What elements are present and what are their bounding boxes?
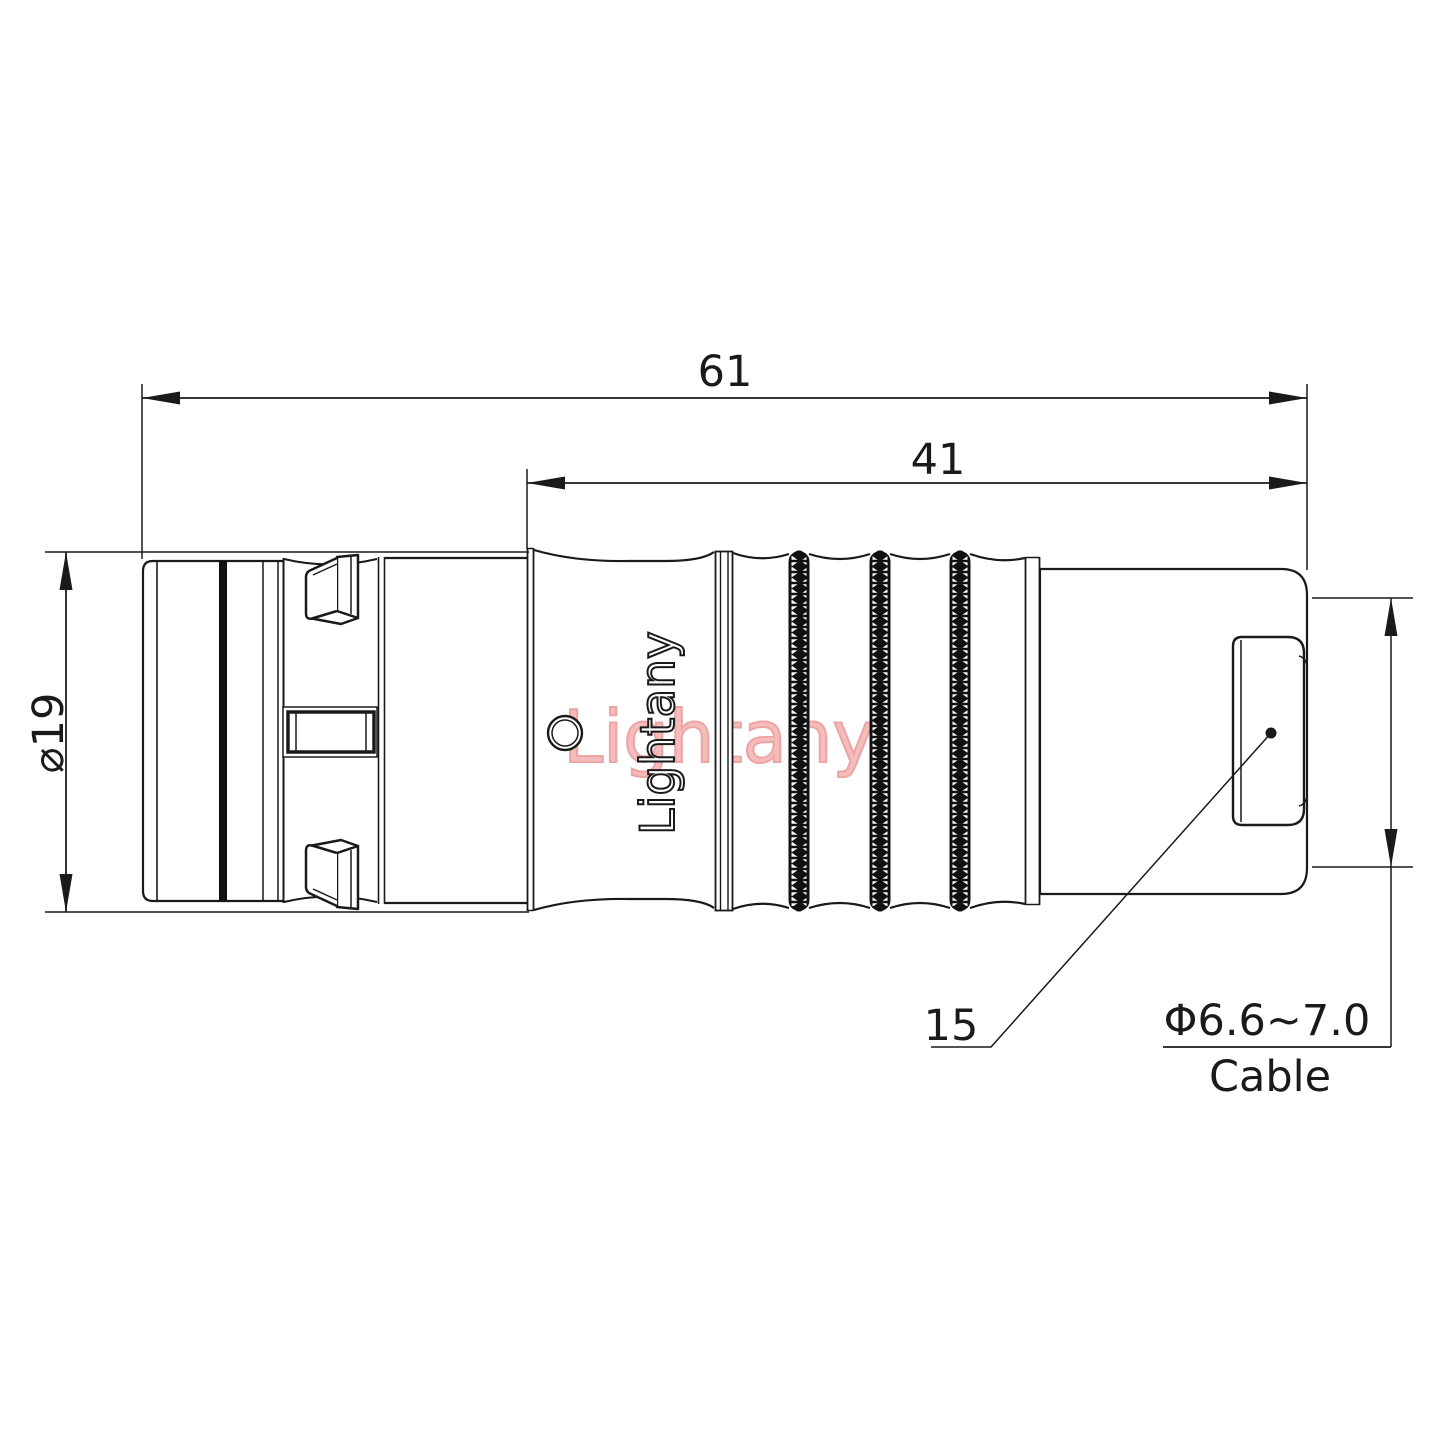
arrowhead-right-icon: [1269, 392, 1307, 405]
side-hole: [548, 716, 582, 750]
black-marker-band: [219, 561, 227, 901]
engraved-brand-text: Lightany: [631, 631, 686, 835]
cable-boot: [1040, 569, 1307, 894]
dimension-overall-length: 61: [142, 347, 1307, 570]
dimension-value-61: 61: [698, 347, 753, 397]
arrowhead-left-icon: [142, 392, 180, 405]
arrowhead-down-icon: [1385, 829, 1398, 867]
knurl-band: [789, 551, 810, 912]
arrowhead-left-icon: [527, 477, 565, 490]
callout-value-15: 15: [924, 1001, 979, 1051]
arrowhead-right-icon: [1269, 477, 1307, 490]
latch-slot-window: [283, 707, 377, 757]
dimension-value-diameter: ⌀19: [24, 693, 74, 774]
arrowhead-up-icon: [1385, 598, 1398, 636]
cable-diameter-value: Φ6.6~7.0: [1164, 996, 1371, 1046]
arrowhead-down-icon: [60, 874, 73, 912]
knurl-band: [950, 551, 971, 912]
cable-label: Cable: [1209, 1052, 1331, 1102]
dimension-rear-length: 41: [527, 435, 1307, 549]
knurl-band: [870, 551, 891, 912]
dimension-value-41: 41: [911, 435, 966, 485]
connector-technical-drawing-page: Lightany 61 41 ⌀19: [0, 0, 1440, 1440]
arrowhead-up-icon: [60, 552, 73, 590]
technical-drawing: Lightany 61 41 ⌀19: [0, 0, 1440, 1440]
